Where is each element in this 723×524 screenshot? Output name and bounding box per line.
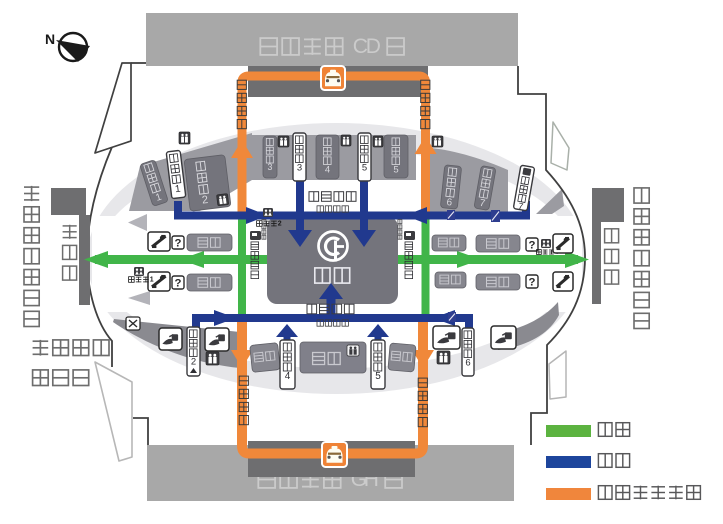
svg-text:4: 4: [325, 164, 330, 175]
svg-text:3: 3: [268, 162, 273, 172]
svg-text:5: 5: [362, 162, 367, 173]
svg-text:1: 1: [150, 277, 154, 284]
svg-text:2: 2: [278, 221, 282, 228]
svg-text:3: 3: [297, 162, 302, 173]
svg-text:5: 5: [393, 164, 398, 175]
svg-text:2: 2: [191, 356, 196, 367]
svg-text:4: 4: [285, 371, 291, 382]
svg-text:N: N: [45, 31, 55, 47]
svg-text:?: ?: [175, 278, 182, 290]
svg-text:?: ?: [529, 240, 536, 252]
svg-text:?: ?: [175, 238, 182, 250]
svg-text:?: ?: [529, 277, 536, 289]
svg-text:6: 6: [465, 357, 470, 368]
svg-text:5: 5: [375, 371, 381, 382]
svg-text:D: D: [366, 35, 381, 58]
